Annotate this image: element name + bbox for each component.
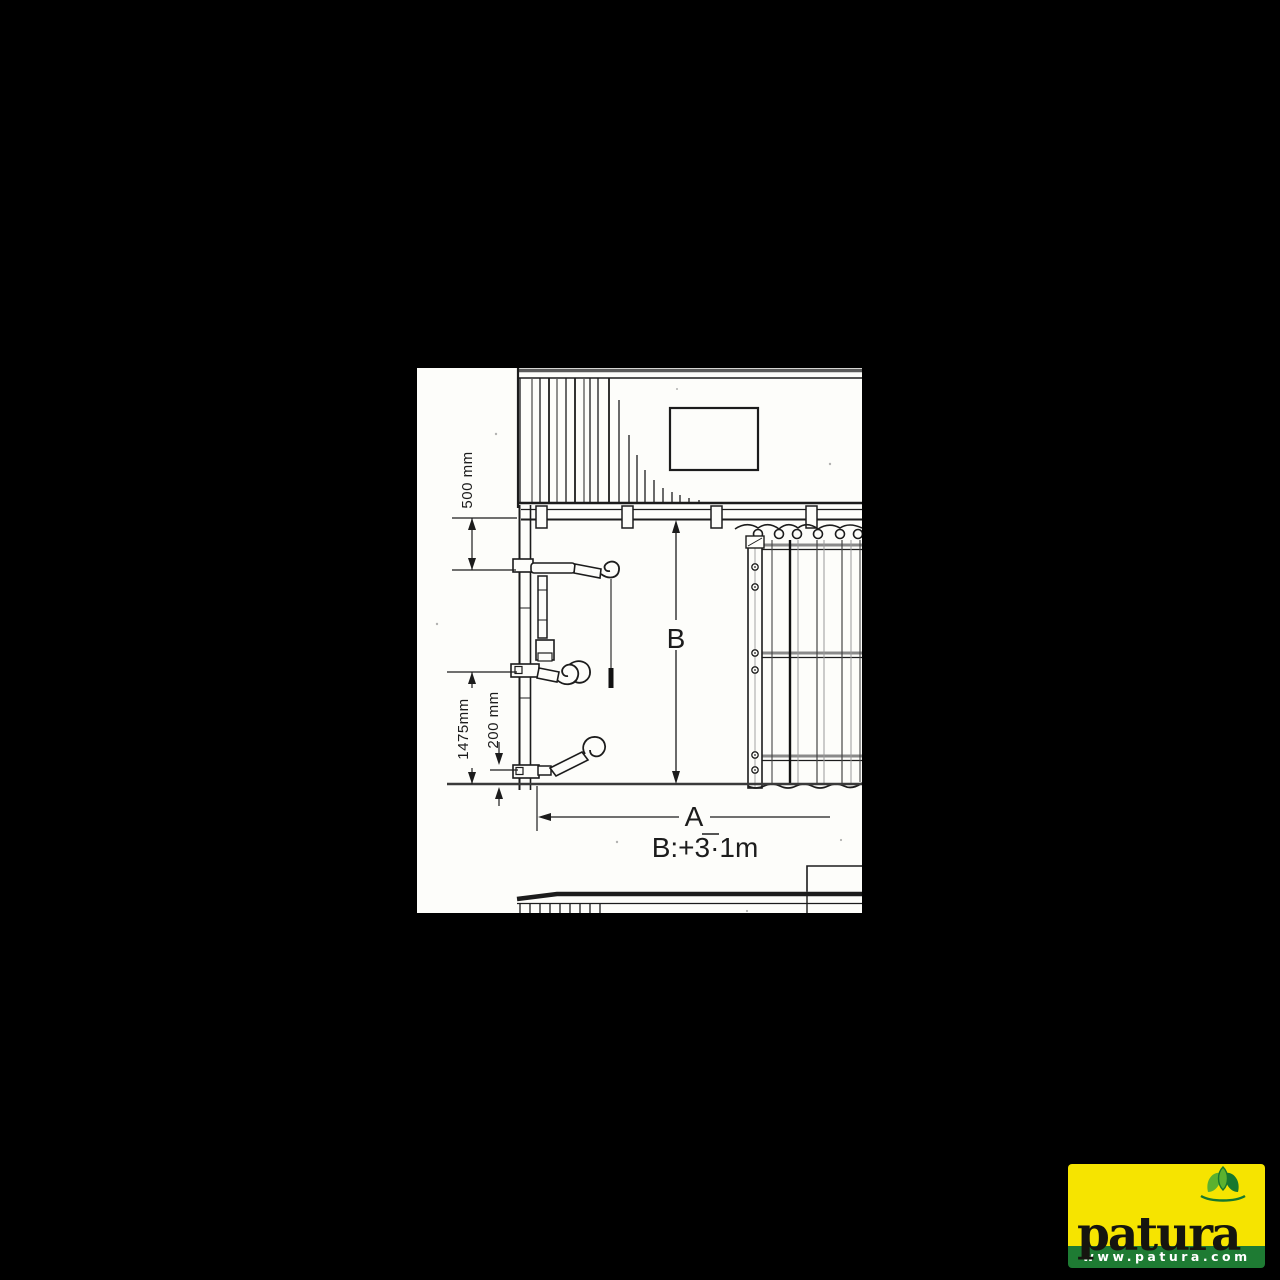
window-opening <box>670 408 758 470</box>
svg-text:1475mm: 1475mm <box>455 698 472 759</box>
note-formula: B:+3·1m <box>652 832 759 863</box>
svg-text:B: B <box>667 623 686 654</box>
dimension-A: A <box>538 801 830 832</box>
mounting-rail <box>518 503 862 528</box>
middle-crank-handle <box>511 661 590 684</box>
scan-specks <box>436 388 842 912</box>
svg-text:200 mm: 200 mm <box>485 691 502 748</box>
patura-wordmark: patura <box>1077 1211 1239 1258</box>
svg-text:B:+3·1m: B:+3·1m <box>652 832 759 863</box>
lower-drawing-fragment <box>517 866 862 913</box>
dimension-200mm: 200 mm <box>485 691 518 806</box>
svg-text:500 mm: 500 mm <box>459 451 476 508</box>
patura-logo: patura www.patura.com <box>1068 1164 1265 1268</box>
windbreak-curtain-diagram: 500 mm 1475mm 200 mm <box>417 368 862 913</box>
technical-drawing-panel: 500 mm 1475mm 200 mm <box>417 368 862 913</box>
patura-leaf-icon <box>1197 1165 1249 1205</box>
dimension-1475mm: 1475mm <box>447 672 517 784</box>
patura-logo-yellow-field: patura <box>1068 1164 1265 1246</box>
bottom-crank-handle <box>513 737 605 778</box>
dimension-B: B <box>667 520 686 784</box>
page-background: 500 mm 1475mm 200 mm <box>0 0 1280 1280</box>
windbreak-curtain <box>735 525 862 788</box>
dimension-500mm: 500 mm <box>452 451 517 570</box>
svg-text:A: A <box>685 801 704 832</box>
